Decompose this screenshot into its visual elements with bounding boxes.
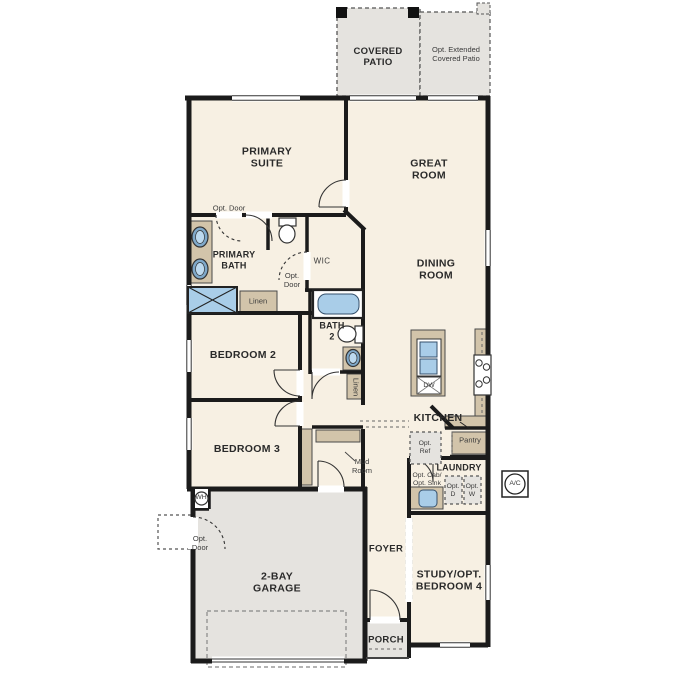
sink-icon — [346, 350, 360, 367]
laundry-sink-icon — [419, 490, 437, 507]
opt-refrigerator — [410, 432, 441, 464]
opt-washer — [464, 476, 481, 504]
linen-closet — [240, 291, 277, 312]
ac-unit-icon — [502, 471, 528, 497]
shower-icon — [188, 287, 237, 313]
dishwasher-icon — [417, 377, 441, 394]
covered-patio-area — [336, 3, 490, 96]
porch-floor — [366, 618, 409, 658]
toilet-icon — [279, 218, 296, 243]
range-icon — [474, 355, 491, 395]
hall-linen-closet — [347, 374, 363, 399]
patio-post — [336, 7, 347, 18]
floor-plan: COVERED PATIO Opt. Extended Covered Pati… — [0, 0, 687, 687]
kitchen-sink-icon — [417, 339, 441, 376]
toilet-icon — [338, 326, 363, 343]
bathtub-icon — [313, 290, 363, 318]
floor-plan-canvas — [0, 0, 687, 687]
pantry-shelf — [452, 432, 489, 454]
mud-bench — [316, 430, 360, 442]
patio-post — [408, 7, 419, 18]
water-heater-icon — [195, 489, 208, 508]
opt-dryer — [445, 476, 462, 504]
garage-floor — [191, 487, 365, 663]
opt-door-pad — [158, 515, 193, 549]
bedroom3-closet — [301, 429, 312, 485]
